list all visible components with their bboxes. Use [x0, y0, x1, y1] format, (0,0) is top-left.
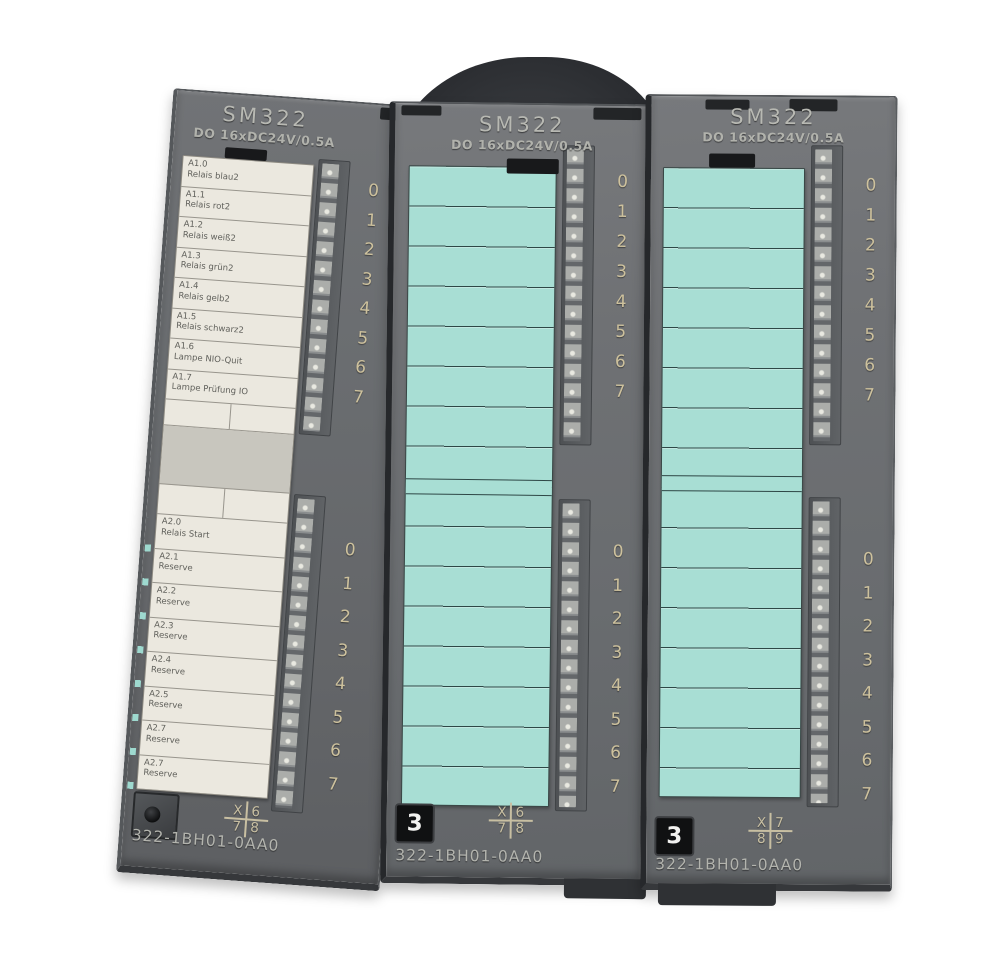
- digit: 1: [365, 210, 378, 240]
- digit: 1: [862, 583, 873, 617]
- digit: 2: [865, 236, 876, 266]
- digit: 6: [354, 357, 367, 387]
- terminal-cell: 7: [493, 820, 511, 836]
- led-strip-lower: [807, 497, 841, 807]
- digit: 5: [615, 322, 626, 352]
- digit: 4: [862, 684, 873, 718]
- digit: 5: [331, 707, 344, 741]
- digit: 4: [333, 674, 346, 708]
- led-strip-lower: [555, 499, 591, 811]
- digit: 6: [864, 356, 875, 386]
- digit: 1: [341, 573, 354, 607]
- led-windows: [559, 503, 580, 807]
- channel-numbers-upper: 0 1 2 3 4 5 6 7: [849, 175, 891, 415]
- module-header: SM322 DO 16xDC24V/0.5A: [651, 104, 895, 146]
- led-windows: [811, 501, 830, 803]
- digit: 1: [612, 575, 623, 609]
- slot-number-badge: 3: [656, 818, 692, 854]
- digit: 0: [617, 172, 628, 202]
- digit: 5: [356, 328, 369, 358]
- digit: 3: [616, 262, 627, 292]
- screw-hole: [144, 806, 161, 823]
- strip-gray-block: [160, 425, 294, 493]
- photo-canvas: SM322 DO 16xDC24V/0.5A A1.0 Relais blau2…: [0, 0, 995, 965]
- terminal-cell: X: [752, 815, 770, 831]
- channel-numbers-upper: 0 1 2 3 4 5 6 7: [600, 172, 643, 412]
- digit: 0: [865, 176, 876, 206]
- bottom-latch: [658, 883, 776, 906]
- digit: 6: [610, 743, 621, 777]
- digit: 1: [865, 206, 876, 236]
- digit: 0: [367, 181, 380, 211]
- module-model-text: SM322: [651, 104, 895, 130]
- label-strip-notch: [709, 153, 755, 167]
- led-strip-upper: [809, 145, 843, 445]
- led-strip-upper: [559, 145, 595, 445]
- terminal-cross-marking: X 6 7 8: [493, 804, 529, 836]
- terminal-cell: 6: [511, 805, 529, 821]
- terminal-cell: X: [228, 802, 247, 819]
- digit: 4: [865, 296, 876, 326]
- digit: 7: [326, 774, 339, 808]
- digit: 5: [864, 326, 875, 356]
- labeling-strip-blank: [401, 165, 557, 807]
- module-type-text: DO 16xDC24V/0.5A: [651, 129, 895, 146]
- labeling-strip-blank: [659, 167, 805, 798]
- digit: 2: [338, 607, 351, 641]
- digit: 3: [865, 266, 876, 296]
- digit: 3: [862, 650, 873, 684]
- digit: 2: [862, 617, 873, 651]
- module-model-text: SM322: [395, 111, 649, 138]
- digit: 0: [343, 540, 356, 574]
- digit: 2: [612, 609, 623, 643]
- digit: 5: [862, 717, 873, 751]
- module-middle: SM322 DO 16xDC24V/0.5A 0 1 2 3 4 5 6 7 0…: [380, 101, 652, 886]
- digit: 7: [352, 387, 365, 417]
- digit: 5: [610, 709, 621, 743]
- digit: 3: [360, 269, 373, 299]
- digit: 7: [609, 776, 620, 810]
- digit: 7: [864, 386, 875, 416]
- module-type-text: DO 16xDC24V/0.5A: [395, 136, 649, 154]
- digit: 0: [612, 542, 623, 576]
- label-strip-notch: [507, 158, 559, 174]
- slot-number-badge: 3: [397, 805, 433, 841]
- module-right: SM322 DO 16xDC24V/0.5A 0 1 2 3 4 5 6 7 0…: [640, 94, 898, 892]
- digit: 0: [863, 550, 874, 584]
- terminal-cell: X: [493, 804, 511, 820]
- digit: 2: [362, 240, 375, 270]
- module-header: SM322 DO 16xDC24V/0.5A: [395, 111, 649, 154]
- digit: 6: [861, 751, 872, 785]
- terminal-cell: 8: [752, 831, 770, 847]
- channel-numbers-lower: 0 1 2 3 4 5 6 7: [847, 549, 889, 817]
- terminal-cell: 9: [770, 831, 788, 847]
- terminal-cell: 7: [770, 815, 788, 831]
- channel-numbers-upper: 0 1 2 3 4 5 6 7: [339, 180, 392, 418]
- digit: 2: [616, 232, 627, 262]
- part-number: 322-1BH01-0AA0: [655, 855, 803, 874]
- digit: 1: [617, 202, 628, 232]
- digit: 4: [358, 298, 371, 328]
- module-header: SM322 DO 16xDC24V/0.5A: [152, 97, 378, 153]
- channel-numbers-lower: 0 1 2 3 4 5 6 7: [595, 542, 638, 810]
- digit: 7: [614, 382, 625, 412]
- terminal-cross-marking: X 7 8 9: [752, 815, 788, 847]
- terminal-cell: 6: [246, 803, 265, 820]
- terminal-cell: 8: [511, 821, 529, 837]
- digit: 4: [615, 292, 626, 322]
- digit: 7: [861, 784, 872, 818]
- terminal-cross-marking: X 6 7 8: [227, 802, 265, 837]
- digit: 6: [328, 740, 341, 774]
- digit: 3: [336, 640, 349, 674]
- digit: 6: [615, 352, 626, 382]
- digit: 4: [611, 676, 622, 710]
- led-windows: [563, 149, 584, 441]
- part-number: 322-1BH01-0AA0: [395, 846, 543, 866]
- bottom-latch: [564, 878, 646, 899]
- digit: 3: [611, 642, 622, 676]
- led-windows: [813, 149, 832, 441]
- channel-numbers-lower: 0 1 2 3 4 5 6 7: [313, 539, 369, 809]
